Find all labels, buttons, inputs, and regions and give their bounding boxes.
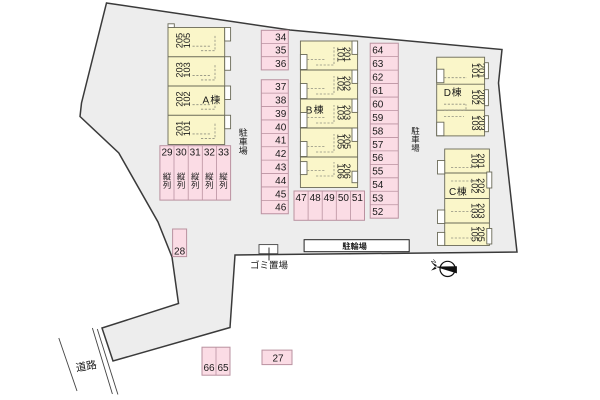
svg-text:63: 63	[372, 59, 384, 70]
svg-text:57: 57	[372, 140, 384, 151]
svg-text:30: 30	[176, 148, 188, 159]
svg-text:103: 103	[182, 62, 192, 77]
svg-text:56: 56	[372, 153, 384, 164]
svg-text:105: 105	[182, 33, 192, 48]
svg-text:35: 35	[275, 46, 287, 57]
svg-text:103: 103	[470, 115, 480, 130]
svg-text:48: 48	[310, 193, 322, 204]
svg-text:105: 105	[336, 134, 346, 149]
svg-text:64: 64	[372, 46, 384, 57]
svg-text:52: 52	[372, 207, 384, 218]
svg-text:31: 31	[190, 148, 202, 159]
svg-text:103: 103	[470, 203, 480, 218]
svg-text:29: 29	[161, 148, 173, 159]
svg-text:101: 101	[470, 153, 480, 168]
svg-text:54: 54	[372, 180, 384, 191]
svg-text:36: 36	[275, 59, 287, 70]
svg-text:101: 101	[182, 121, 192, 136]
svg-text:32: 32	[204, 148, 216, 159]
svg-text:28: 28	[174, 247, 186, 258]
svg-text:66: 66	[203, 363, 215, 374]
svg-text:51: 51	[352, 193, 364, 204]
svg-text:105: 105	[470, 227, 480, 242]
svg-text:37: 37	[275, 82, 287, 93]
svg-text:33: 33	[218, 148, 230, 159]
svg-text:45: 45	[275, 189, 287, 200]
svg-text:101: 101	[470, 63, 480, 78]
svg-text:59: 59	[372, 113, 384, 124]
svg-text:43: 43	[275, 162, 287, 173]
svg-text:61: 61	[372, 86, 384, 97]
svg-text:27: 27	[272, 354, 284, 365]
svg-text:106: 106	[336, 164, 346, 179]
svg-text:46: 46	[275, 203, 287, 214]
svg-text:55: 55	[372, 167, 384, 178]
svg-text:39: 39	[275, 109, 287, 120]
svg-text:41: 41	[275, 136, 287, 147]
svg-text:102: 102	[336, 76, 346, 91]
svg-text:50: 50	[338, 193, 350, 204]
svg-text:D: D	[444, 88, 451, 99]
svg-text:62: 62	[372, 72, 384, 83]
svg-text:53: 53	[372, 194, 384, 205]
svg-text:102: 102	[182, 91, 192, 106]
svg-text:65: 65	[217, 363, 229, 374]
svg-text:42: 42	[275, 149, 287, 160]
svg-text:40: 40	[275, 122, 287, 133]
svg-text:58: 58	[372, 126, 384, 137]
svg-text:38: 38	[275, 95, 287, 106]
svg-text:49: 49	[324, 193, 336, 204]
svg-text:44: 44	[275, 176, 287, 187]
svg-text:101: 101	[336, 47, 346, 62]
svg-text:102: 102	[470, 90, 480, 105]
svg-text:34: 34	[275, 33, 287, 44]
svg-text:103: 103	[336, 105, 346, 120]
svg-text:C: C	[449, 187, 456, 198]
svg-text:60: 60	[372, 99, 384, 110]
svg-text:47: 47	[296, 193, 308, 204]
svg-text:102: 102	[470, 178, 480, 193]
